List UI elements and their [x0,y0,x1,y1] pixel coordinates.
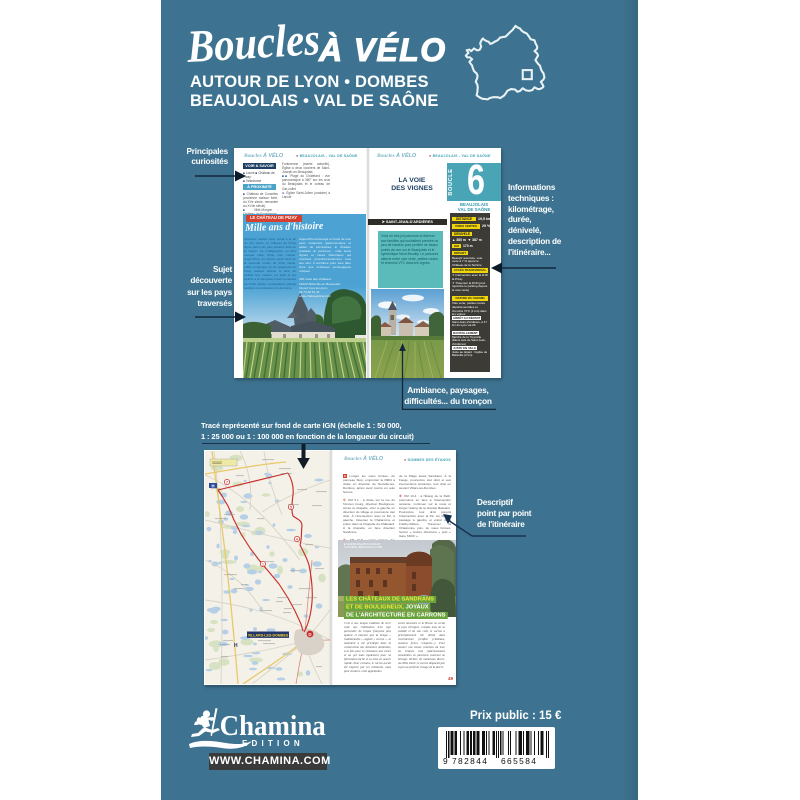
svg-text:1: 1 [262,563,264,567]
svg-text:H: H [211,483,214,488]
svg-text:9: 9 [443,756,448,766]
svg-text:VILLARS-LES-DOMBES: VILLARS-LES-DOMBES [248,633,289,637]
svg-text:H: H [234,643,238,649]
svg-text:665584: 665584 [501,756,537,766]
svg-text:7: 7 [226,481,228,485]
svg-text:D: D [308,632,311,637]
svg-text:4: 4 [296,538,298,542]
svg-text:Chamina: Chamina [220,711,326,742]
svg-text:782844: 782844 [452,756,488,766]
svg-text:5: 5 [290,506,292,510]
svg-text:EDITION: EDITION [242,739,304,748]
